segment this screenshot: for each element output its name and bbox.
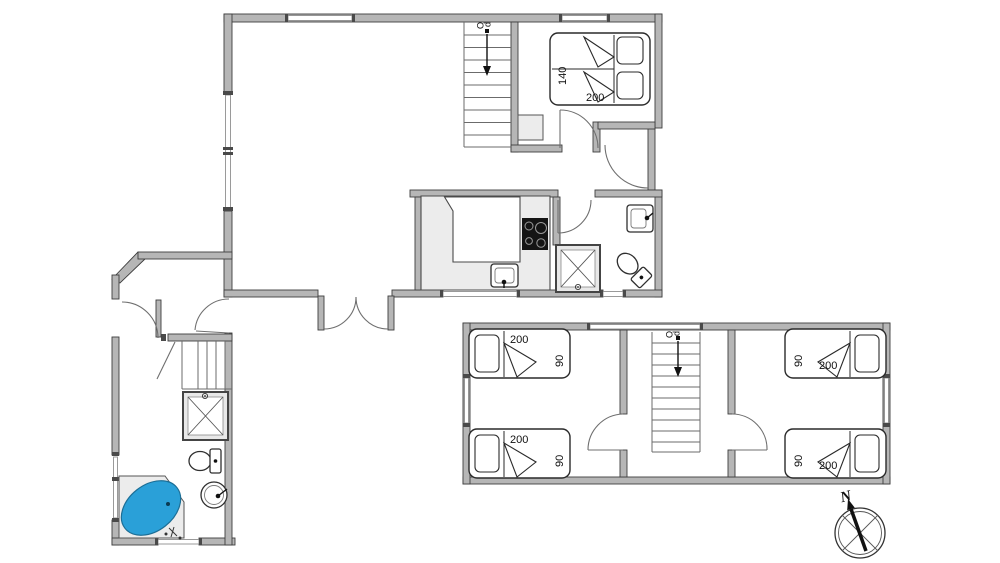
wing-inner-door [157, 342, 175, 379]
bed-length-label: 200 [510, 434, 528, 446]
bed-length-label: 200 [819, 360, 837, 372]
bed-width-label: 90 [554, 455, 566, 467]
pillow [475, 435, 499, 472]
entrance-double-door [318, 296, 394, 330]
bed-length-label: 200 [586, 92, 604, 104]
stairs-arrow-head [483, 66, 491, 76]
bed-width-label: 140 [557, 67, 569, 85]
bed-width-label: 90 [793, 455, 805, 467]
kitchen [421, 196, 550, 290]
single-bed-right-top: 90 200 [785, 329, 886, 378]
bed-width-label: 90 [554, 355, 566, 367]
window-kitchen [443, 292, 517, 297]
bathroom-door [558, 200, 591, 233]
bed-length-label: 200 [510, 334, 528, 346]
main-bathroom [556, 205, 653, 292]
stairs-arrow-start-dot [485, 29, 489, 33]
stairwell-wall [511, 22, 518, 152]
floor-plan-drawing: Op [0, 0, 1000, 563]
bathtub-drain [166, 502, 170, 506]
compass-rose: N [835, 488, 885, 558]
compass-north-label: N [838, 488, 855, 507]
pillow [475, 335, 499, 372]
wing-stairs [182, 341, 232, 389]
ground-floor-plan: Op [111, 14, 662, 546]
bedroom-wardrobe [518, 115, 543, 140]
pillow [855, 335, 879, 372]
bed-length-label: 200 [819, 460, 837, 472]
window-top-wall-left [288, 16, 352, 21]
corner-bathtub [111, 470, 191, 547]
right-room-door [732, 414, 767, 450]
bathroom-sink [627, 205, 653, 232]
main-stairs: Op [464, 22, 511, 147]
first-floor-stairs: Op [652, 331, 700, 452]
single-bed-right-bottom: 90 200 [785, 429, 886, 478]
kitchen-sink [491, 264, 518, 288]
single-bed-left-top: 200 90 [469, 329, 570, 378]
window-bedroom [562, 16, 607, 21]
pillow [617, 37, 643, 64]
wing-bathroom [111, 392, 228, 546]
window-bathroom [603, 292, 623, 297]
window-stairwell [590, 325, 700, 330]
bedroom-door [560, 110, 598, 148]
wing-toilet [189, 449, 221, 473]
wing-entry-door [122, 302, 158, 338]
pillow [855, 435, 879, 472]
pillow [617, 72, 643, 99]
wing-shower [183, 392, 228, 440]
single-bed-left-bottom: 200 90 [469, 429, 570, 478]
wing-hall-stub-wall [156, 300, 161, 337]
wing-round-sink [201, 482, 227, 508]
window-left-room [465, 378, 469, 423]
main-stairs-direction-label: Op [475, 22, 494, 31]
window-wing-left [114, 457, 118, 518]
double-bed: 140 200 [550, 33, 650, 105]
compass-needle [851, 509, 866, 551]
first-floor-plan: Op 200 90 200 90 90 200 [463, 323, 890, 484]
left-room-door [588, 414, 623, 450]
stairs-arrow-start-dot [676, 336, 680, 340]
toilet [613, 249, 652, 288]
bed-width-label: 90 [793, 355, 805, 367]
first-floor-doors [588, 414, 767, 450]
wing-hall-door [195, 299, 229, 333]
hall-door [605, 145, 648, 188]
shower [556, 245, 600, 292]
window-right-room [885, 378, 889, 423]
window-wing-bottom [158, 540, 199, 545]
floor-plan-page: Op [0, 0, 1000, 563]
